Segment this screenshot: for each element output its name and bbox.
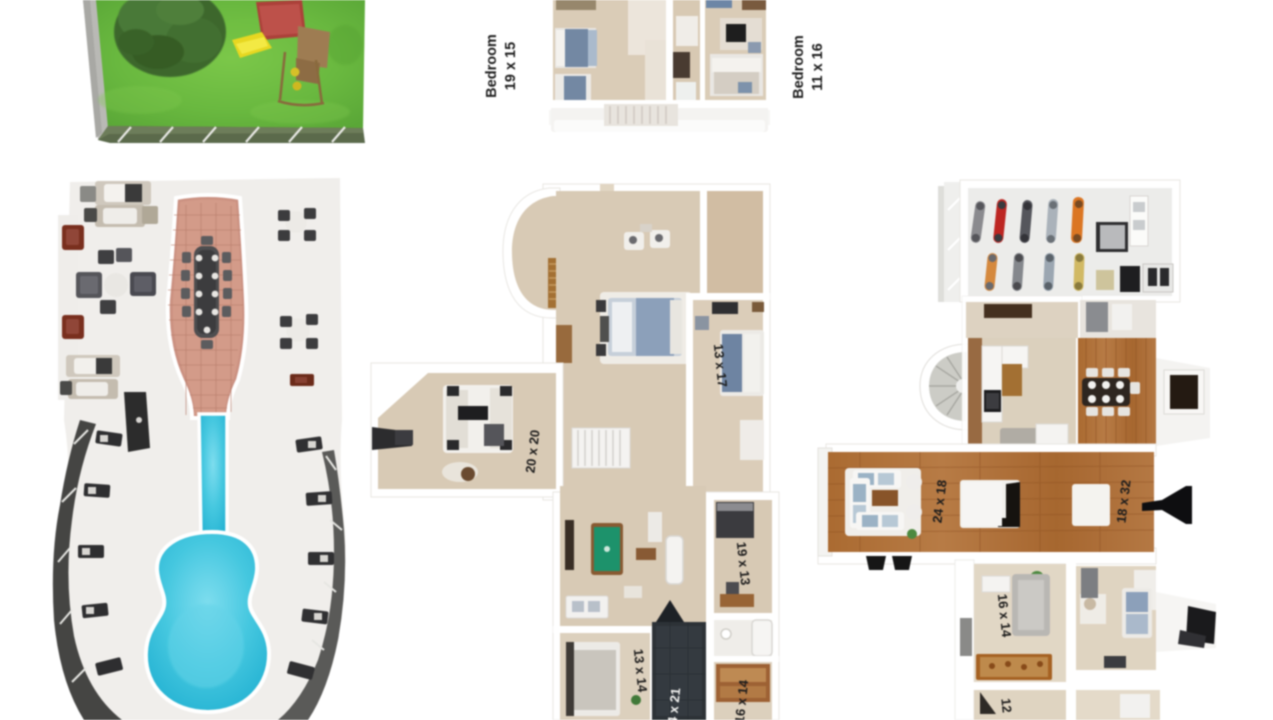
svg-text:19 x 15: 19 x 15 <box>503 42 519 90</box>
svg-text:Bedroom: Bedroom <box>791 35 807 99</box>
svg-text:12: 12 <box>998 698 1014 714</box>
svg-text:11 x 16: 11 x 16 <box>810 43 826 91</box>
svg-text:Bedroom: Bedroom <box>484 34 500 98</box>
